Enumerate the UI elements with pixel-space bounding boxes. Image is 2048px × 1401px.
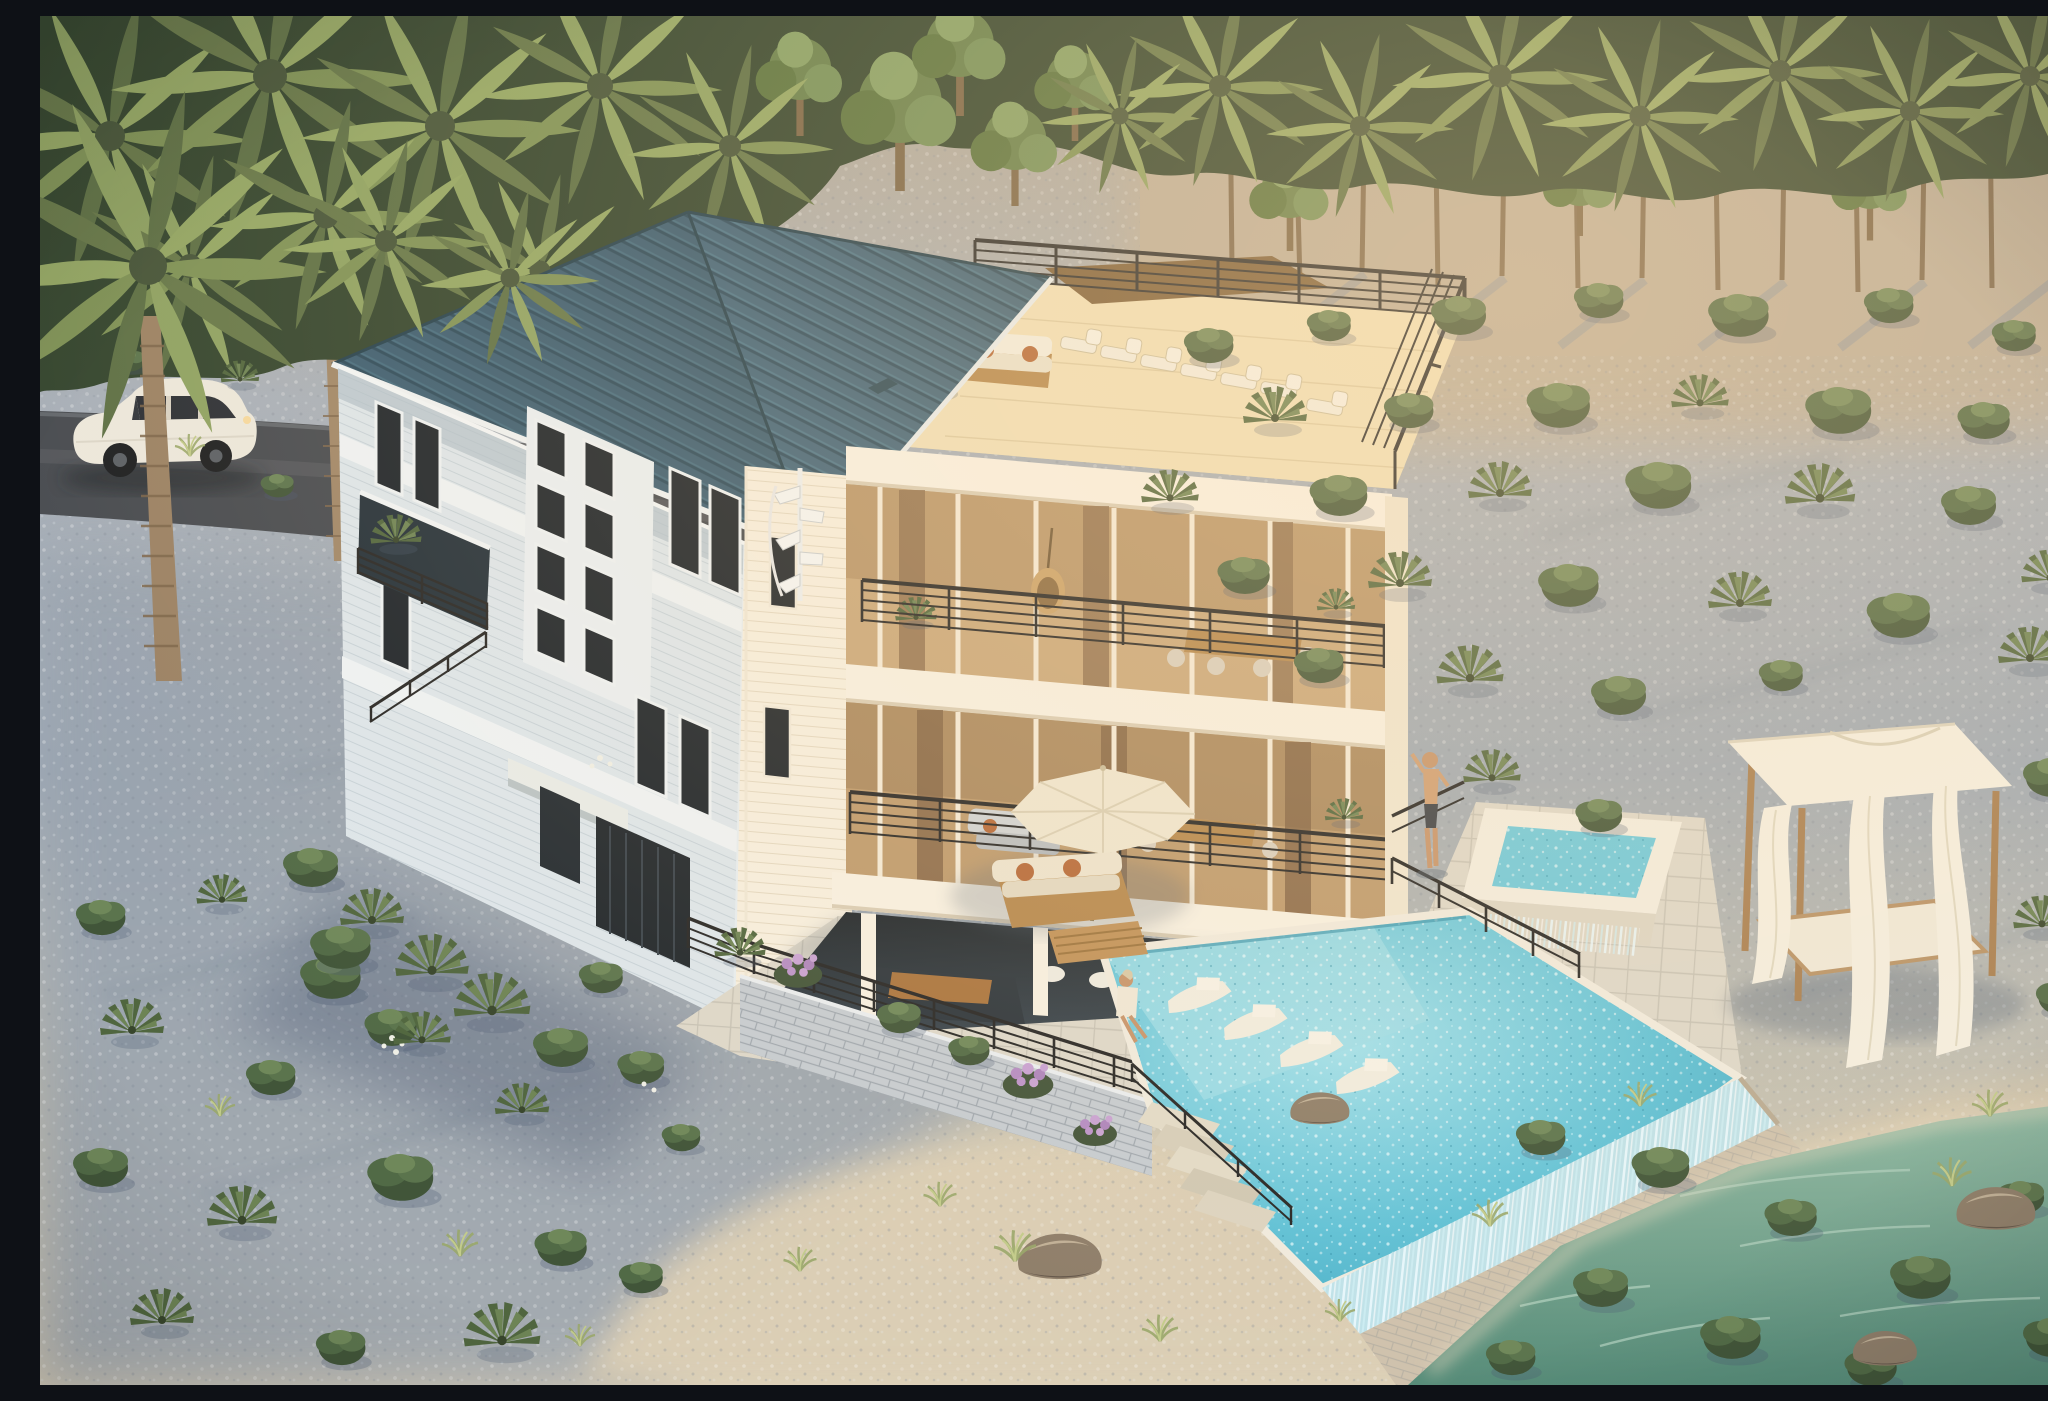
vignette xyxy=(40,16,2048,1385)
rendering-scene: Aerial golden-hour rendering of a three-… xyxy=(40,16,2048,1385)
scene-canvas: Aerial golden-hour rendering of a three-… xyxy=(40,16,2048,1385)
